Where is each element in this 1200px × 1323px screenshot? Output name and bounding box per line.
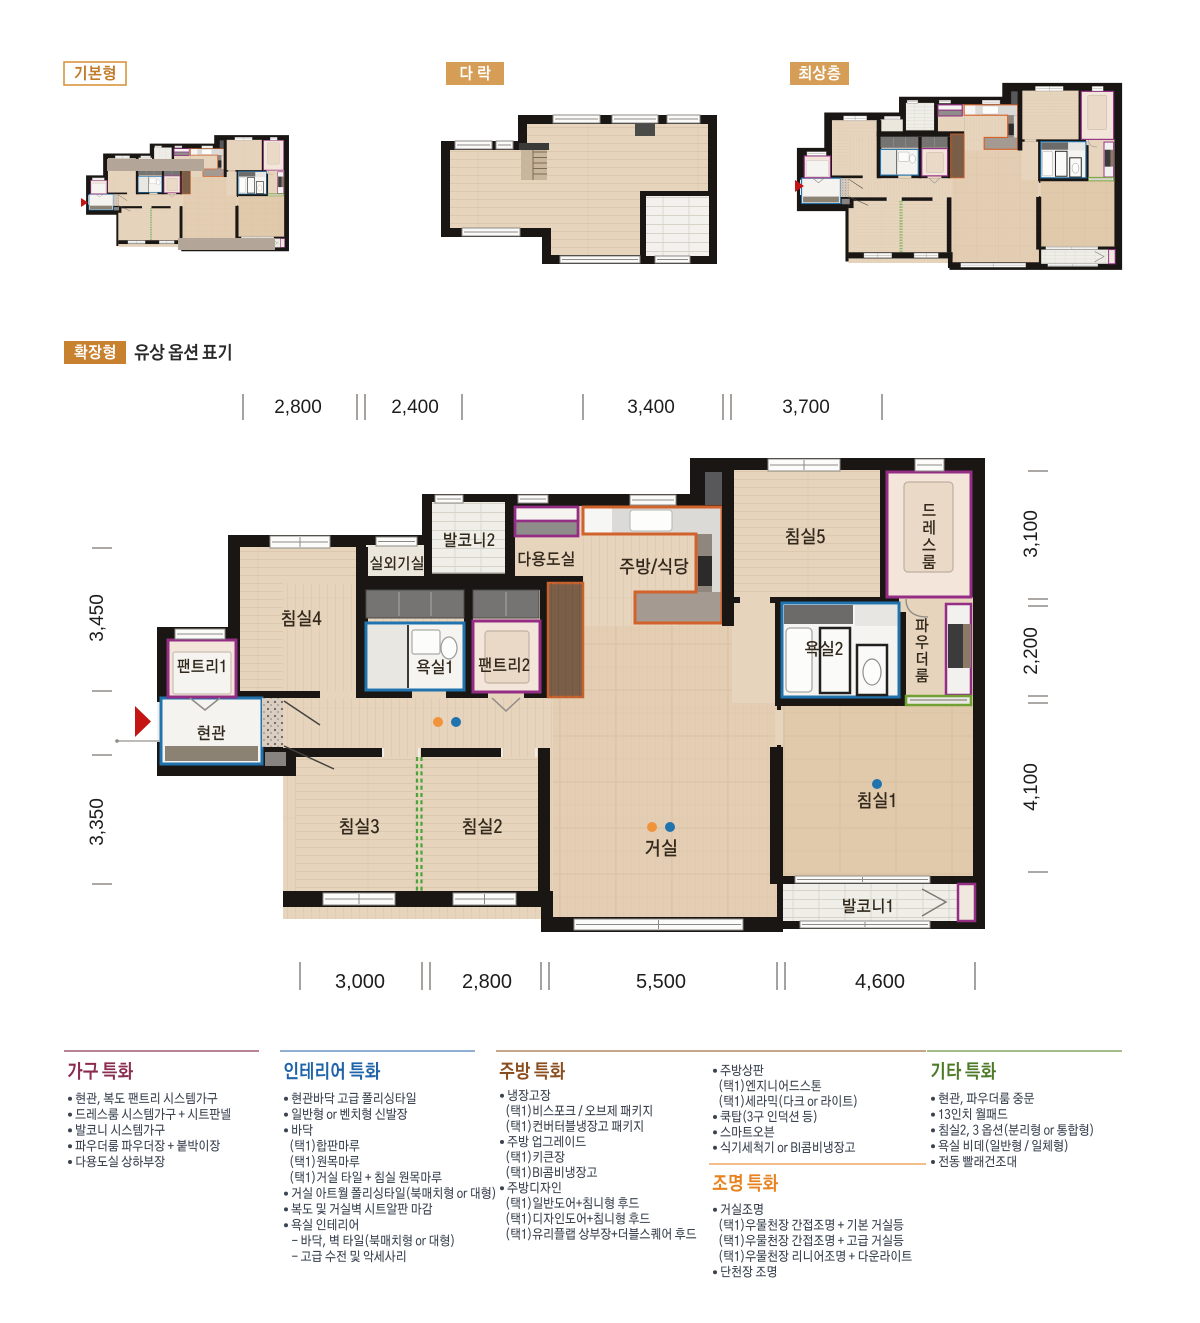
svg-text:2,800: 2,800 <box>462 971 512 993</box>
svg-text:3,100: 3,100 <box>1021 510 1042 558</box>
svg-text:3,000: 3,000 <box>335 971 385 993</box>
svg-text:2,800: 2,800 <box>274 397 322 418</box>
svg-text:4,600: 4,600 <box>855 971 905 993</box>
svg-text:5,500: 5,500 <box>636 971 686 993</box>
svg-text:3,400: 3,400 <box>627 397 675 418</box>
svg-text:3,450: 3,450 <box>87 594 108 642</box>
svg-text:4,100: 4,100 <box>1021 763 1042 811</box>
svg-text:3,350: 3,350 <box>87 798 108 846</box>
svg-text:3,700: 3,700 <box>782 397 830 418</box>
svg-text:2,400: 2,400 <box>391 397 439 418</box>
svg-text:2,200: 2,200 <box>1021 627 1042 675</box>
